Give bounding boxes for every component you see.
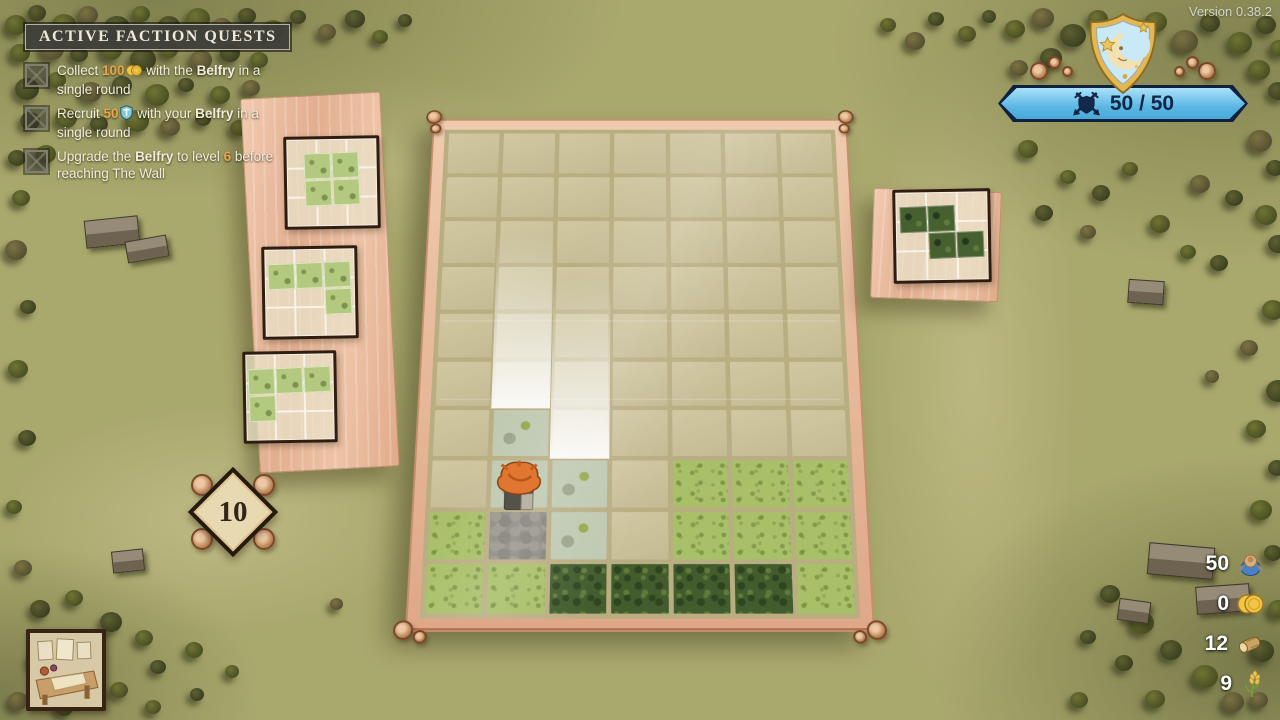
board-cell-empty[interactable] — [554, 361, 609, 406]
board-cell-empty[interactable] — [495, 361, 550, 406]
quest-text: Recruit 50 with your Belfry in a single … — [57, 105, 275, 141]
tree — [78, 6, 98, 24]
board-cell-empty[interactable] — [613, 314, 667, 357]
tree — [1115, 655, 1133, 671]
quest-list: Collect 100 with the Belfry in a single … — [25, 62, 275, 189]
board-cell-empty[interactable] — [725, 134, 777, 174]
board-cell-empty[interactable] — [438, 314, 493, 357]
banner-scroll-ornament — [1198, 62, 1216, 80]
board-cell-empty[interactable] — [613, 267, 666, 309]
tree — [1248, 130, 1272, 152]
quest-checkbox — [25, 64, 48, 87]
board-cell-grass[interactable] — [672, 460, 728, 507]
tree — [1266, 380, 1280, 402]
piece-tile-grass — [331, 151, 359, 178]
tree — [1240, 340, 1258, 356]
tree — [1268, 82, 1280, 100]
board-cell-empty[interactable] — [612, 460, 668, 507]
tree — [345, 10, 365, 28]
board-cell-empty[interactable] — [430, 460, 487, 507]
board-cell-sparse-grass[interactable] — [493, 410, 549, 456]
tree — [1018, 140, 1038, 158]
board-cell-empty[interactable] — [730, 361, 785, 406]
tree — [8, 692, 28, 710]
house — [111, 548, 145, 573]
version-label: Version 0.38.2 — [1189, 4, 1272, 19]
board-cell-forest[interactable] — [611, 564, 668, 613]
board-cell-empty[interactable] — [726, 177, 779, 218]
piece-tile-grass — [247, 368, 275, 395]
board-cell-empty[interactable] — [556, 267, 609, 309]
board-cell-forest[interactable] — [673, 564, 731, 613]
house — [1127, 279, 1165, 305]
tree — [1145, 690, 1165, 708]
tree — [135, 630, 153, 646]
tree — [1180, 245, 1196, 259]
piece-tile-grass — [303, 365, 331, 392]
recruit-icon — [120, 105, 133, 124]
tree — [290, 10, 306, 24]
tree — [1010, 60, 1028, 76]
piece-tile-grass — [295, 262, 323, 289]
tree — [1080, 630, 1096, 644]
board-cell-empty[interactable] — [557, 221, 610, 262]
board-cell-empty[interactable] — [612, 512, 668, 560]
board-cell-empty[interactable] — [553, 410, 608, 456]
tree — [14, 560, 32, 576]
board-cell-grass[interactable] — [425, 564, 484, 613]
board-cell-empty[interactable] — [729, 314, 784, 357]
piece-preview-1[interactable] — [283, 135, 381, 230]
tree — [190, 688, 204, 701]
tree — [1246, 420, 1266, 438]
cards-button[interactable] — [26, 629, 106, 711]
tree — [1060, 170, 1076, 184]
banner-scroll-ornament — [1062, 66, 1073, 77]
tree — [1270, 40, 1280, 56]
board-cell-empty[interactable] — [612, 410, 667, 456]
tree — [30, 600, 50, 618]
quest-checkbox — [25, 107, 48, 130]
tree — [1268, 460, 1280, 476]
board-cell-sparse-grass[interactable] — [552, 460, 608, 507]
tree — [6, 500, 22, 514]
board-cell-empty[interactable] — [558, 177, 610, 218]
tree — [5, 15, 27, 35]
tree — [318, 24, 336, 40]
board-cell-empty[interactable] — [614, 177, 666, 218]
board-cell-empty[interactable] — [672, 410, 727, 456]
house — [1117, 598, 1152, 624]
moon-shield-icon — [1086, 12, 1160, 101]
board-cell-empty[interactable] — [443, 221, 497, 262]
wood-icon — [1236, 631, 1264, 657]
piece-tile-forest — [956, 231, 984, 258]
resource-wood: 12 — [1205, 624, 1264, 664]
tree — [958, 26, 976, 42]
board-cell-empty[interactable] — [727, 221, 780, 262]
resource-coins-value: 0 — [1217, 592, 1229, 616]
frame-scroll-ornament — [853, 630, 868, 644]
tree — [1122, 162, 1138, 176]
board-cell-grass[interactable] — [794, 512, 852, 560]
resource-list: 500129 — [1205, 544, 1264, 704]
tree — [28, 5, 46, 21]
tree — [880, 18, 896, 32]
tree — [20, 300, 36, 314]
board-cell-grass[interactable] — [733, 512, 791, 560]
piece-preview-2[interactable] — [261, 245, 359, 340]
tree — [1228, 32, 1252, 54]
tree — [1255, 205, 1277, 225]
piece-preview-3[interactable] — [242, 350, 338, 444]
tree — [1262, 300, 1280, 320]
tree — [928, 12, 944, 26]
tree — [1172, 30, 1198, 53]
board-cell-empty[interactable] — [440, 267, 495, 309]
board-cell-empty[interactable] — [613, 361, 667, 406]
board-cell-empty[interactable] — [447, 134, 500, 174]
board-cell-empty[interactable] — [503, 134, 555, 174]
quest-item: Collect 100 with the Belfry in a single … — [25, 62, 275, 98]
tree — [8, 150, 26, 166]
piece-tile-grass — [249, 395, 277, 422]
tree — [330, 598, 343, 610]
piece-tile-grass — [303, 153, 331, 180]
quest-text: Upgrade the Belfry to level 6 before rea… — [57, 148, 275, 182]
tree — [132, 6, 150, 22]
tree — [1160, 640, 1182, 660]
board-cell-grass[interactable] — [487, 564, 545, 613]
frame-scroll-ornament — [412, 630, 427, 644]
tree — [905, 32, 925, 50]
board-cell-empty[interactable] — [785, 267, 840, 309]
tree — [5, 240, 27, 260]
board-cell-forest[interactable] — [549, 564, 607, 613]
board-cell-empty[interactable] — [614, 134, 665, 174]
frame-scroll-ornament — [393, 620, 414, 639]
banner-scroll-ornament — [1048, 56, 1061, 69]
board-cell-grass[interactable] — [796, 564, 855, 613]
board-cell-empty[interactable] — [783, 221, 837, 262]
board-cell-empty[interactable] — [559, 134, 611, 174]
quest-item: Recruit 50 with your Belfry in a single … — [25, 105, 275, 141]
board-frame — [405, 119, 875, 632]
wheat-icon — [1240, 670, 1264, 698]
board-cell-forest[interactable] — [735, 564, 793, 613]
game-screen: 10 ACTIVE FACTION QUESTS Collect 100 wit… — [0, 0, 1280, 720]
board-cell-empty[interactable] — [672, 361, 727, 406]
tree — [1268, 600, 1280, 618]
resource-wheat: 9 — [1205, 664, 1264, 704]
tree — [8, 360, 28, 378]
quest-text: Collect 100 with the Belfry in a single … — [57, 62, 275, 98]
frame-scroll-ornament — [426, 110, 443, 124]
tree — [1100, 585, 1120, 603]
tree — [1080, 225, 1096, 239]
game-board[interactable] — [405, 119, 875, 632]
tree — [372, 30, 388, 44]
tree — [1268, 235, 1280, 253]
tree — [1210, 255, 1228, 271]
tree — [1250, 500, 1272, 520]
coins-icon — [126, 64, 142, 81]
piece-tile-grass — [267, 263, 295, 290]
board-cell-empty[interactable] — [433, 410, 490, 456]
tree — [1150, 215, 1170, 233]
board-cell-empty[interactable] — [671, 314, 725, 357]
tree — [12, 190, 30, 206]
board-cell-empty[interactable] — [670, 221, 723, 262]
piece-tile-grass — [332, 178, 360, 205]
piece-tile-forest — [927, 205, 955, 232]
tree — [150, 660, 166, 674]
board-cell-empty[interactable] — [555, 314, 609, 357]
piece-tile-forest — [928, 232, 956, 259]
tree — [1005, 20, 1025, 38]
tree — [1032, 8, 1054, 28]
tree — [398, 14, 412, 27]
player-caravan — [484, 456, 550, 566]
tree — [145, 700, 161, 714]
tree — [110, 682, 128, 698]
tree — [1070, 692, 1088, 708]
banner-scroll-ornament — [1030, 62, 1048, 80]
tree — [1035, 205, 1053, 221]
board-cell-empty[interactable] — [445, 177, 498, 218]
board-cell-sparse-grass[interactable] — [550, 512, 607, 560]
tree — [1060, 24, 1086, 47]
board-cell-empty[interactable] — [501, 177, 554, 218]
villagers-icon — [1237, 551, 1264, 578]
banner-scroll-ornament — [1186, 56, 1199, 69]
tree — [1205, 370, 1219, 383]
piece-tile-grass — [324, 288, 352, 315]
board-cell-empty[interactable] — [670, 134, 722, 174]
tree — [238, 8, 256, 24]
tree — [982, 10, 996, 23]
tree — [1266, 160, 1280, 176]
board-cell-grass[interactable] — [732, 460, 789, 507]
piece-tile-forest — [899, 207, 927, 234]
piece-tile-grass — [304, 180, 332, 207]
resource-villagers-value: 50 — [1206, 552, 1229, 576]
board-cell-empty[interactable] — [435, 361, 491, 406]
tree — [225, 665, 239, 678]
board-cell-empty[interactable] — [731, 410, 787, 456]
board-cell-empty[interactable] — [500, 221, 553, 262]
frame-scroll-ornament — [866, 620, 887, 639]
resource-wheat-value: 9 — [1220, 672, 1232, 696]
board-cell-empty[interactable] — [789, 361, 845, 406]
resource-coins: 0 — [1205, 584, 1264, 624]
board-cell-empty[interactable] — [728, 267, 782, 309]
board-cell-empty[interactable] — [787, 314, 842, 357]
banner-scroll-ornament — [1174, 66, 1185, 77]
quest-checkbox — [25, 150, 48, 173]
board-cell-empty[interactable] — [670, 177, 722, 218]
tree — [18, 430, 36, 446]
frame-scroll-ornament — [430, 124, 442, 134]
resource-villagers: 50 — [1205, 544, 1264, 584]
round-counter-value: 10 — [193, 472, 273, 552]
round-counter: 10 — [193, 472, 273, 552]
tree — [65, 590, 83, 606]
board-cell-grass[interactable] — [673, 512, 730, 560]
board-cell-empty[interactable] — [780, 134, 833, 174]
tree — [1190, 175, 1210, 193]
board-cell-empty[interactable] — [671, 267, 724, 309]
quest-panel-title: ACTIVE FACTION QUESTS — [25, 24, 290, 50]
board-cell-empty[interactable] — [790, 410, 847, 456]
tree — [1225, 190, 1243, 206]
tree — [1248, 60, 1270, 80]
board-cell-grass[interactable] — [428, 512, 486, 560]
board-cell-empty[interactable] — [614, 221, 666, 262]
piece-tile-grass — [323, 261, 351, 288]
board-cell-empty[interactable] — [782, 177, 835, 218]
tree — [1092, 185, 1110, 201]
board-cell-empty[interactable] — [498, 267, 552, 309]
quest-item: Upgrade the Belfry to level 6 before rea… — [25, 148, 275, 182]
board-cell-grass[interactable] — [792, 460, 849, 507]
frame-scroll-ornament — [838, 110, 855, 124]
tree — [1264, 545, 1280, 561]
coins-icon — [1237, 592, 1264, 616]
board-cell-empty[interactable] — [496, 314, 551, 357]
resource-wood-value: 12 — [1205, 632, 1228, 656]
piece-tile-grass — [275, 366, 303, 393]
piece-preview-right[interactable] — [892, 188, 992, 284]
tree — [185, 642, 203, 658]
frame-scroll-ornament — [838, 124, 850, 134]
